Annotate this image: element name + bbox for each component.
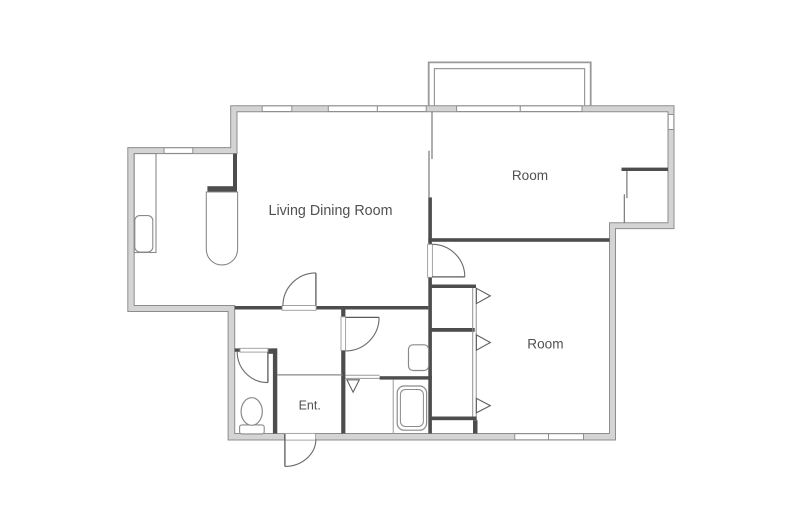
svg-text:Room: Room	[512, 168, 548, 183]
svg-text:Room: Room	[527, 337, 563, 352]
svg-text:Living Dining Room: Living Dining Room	[269, 203, 393, 219]
svg-text:Ent.: Ent.	[299, 398, 321, 412]
